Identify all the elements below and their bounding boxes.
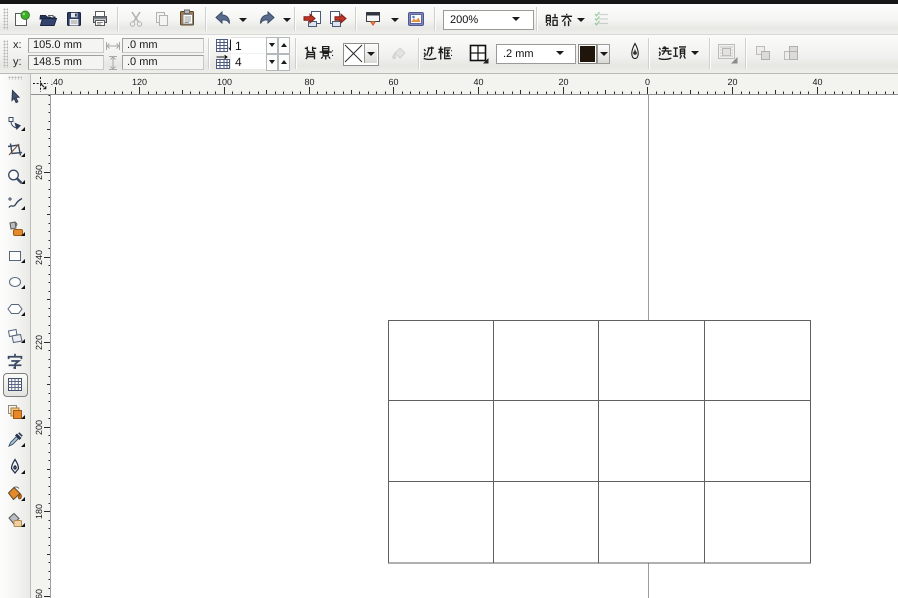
svg-text:240: 240: [34, 250, 44, 265]
svg-text:200: 200: [34, 420, 44, 435]
svg-text:40: 40: [473, 77, 483, 87]
svg-text:220: 220: [34, 335, 44, 350]
svg-text:260: 260: [34, 165, 44, 180]
svg-text:60: 60: [388, 77, 398, 87]
svg-text:160: 160: [34, 589, 44, 598]
svg-text:120: 120: [132, 77, 147, 87]
svg-text:40: 40: [812, 77, 822, 87]
svg-text:180: 180: [34, 504, 44, 519]
svg-text:0: 0: [645, 77, 650, 87]
svg-text:100: 100: [217, 77, 232, 87]
svg-text:80: 80: [304, 77, 314, 87]
svg-text:20: 20: [727, 77, 737, 87]
svg-text:20: 20: [558, 77, 568, 87]
